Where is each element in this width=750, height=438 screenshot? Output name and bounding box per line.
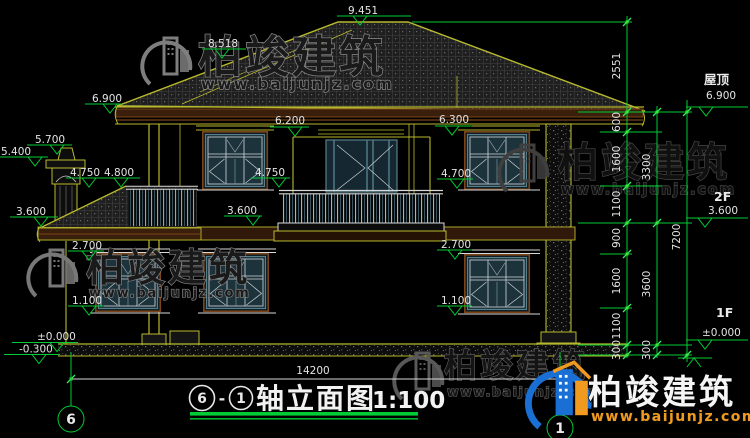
floor-level-marks: 屋顶 6.900 2F 3.600 1F ±0.000	[678, 72, 748, 367]
level-label: 1.100	[72, 295, 102, 307]
brand-logo-color: 柏竣建筑 www.baijunjz.com	[528, 362, 750, 426]
level-label: 5.400	[1, 146, 31, 158]
drawing-title: 6 - 1 轴立面图 1:100	[190, 382, 446, 420]
balcony-railing	[279, 191, 443, 224]
roof-floor-label: 屋顶	[704, 72, 730, 87]
dim-label: 1600	[611, 268, 623, 295]
level-label: 4.800	[104, 167, 134, 179]
dim-label: 300	[641, 340, 653, 360]
cad-elevation-screenshot: 柏竣建筑 www.baijunjz.com 柏竣建筑 www.baijunjz.…	[0, 0, 750, 438]
title-scale: 1:100	[372, 388, 445, 414]
balcony-door	[326, 140, 397, 192]
level-label: 3.600	[16, 206, 46, 218]
watermark-brand-text: 柏竣建筑	[86, 246, 250, 290]
level-label: 4.750	[70, 167, 100, 179]
watermark-url-text: www.baijunjz.com	[89, 286, 251, 301]
window-1f-c	[465, 255, 530, 312]
title-underline-thick	[190, 412, 418, 416]
watermark-url-text: www.baijunjz.com	[201, 75, 394, 93]
overall-width-label: 14200	[296, 365, 329, 377]
f1-floor-label: 1F	[716, 305, 733, 320]
title-axis-start: 6	[197, 391, 207, 407]
f2-floor-value: 3.600	[708, 205, 738, 217]
title-text: 轴立面图	[256, 382, 376, 415]
dim-label: 600	[611, 112, 623, 132]
level-label: 3.600	[227, 205, 257, 217]
window-2f-left	[203, 132, 267, 190]
level-label: 6.200	[275, 115, 305, 127]
watermark-left: 柏竣建筑 www.baijunjz.com	[28, 246, 250, 301]
level-label: -0.300	[19, 344, 53, 356]
roof-floor-value: 6.900	[706, 90, 736, 102]
dim-label: 3600	[641, 271, 653, 298]
level-label: 1.100	[441, 295, 471, 307]
dim-label: 1100	[611, 191, 623, 218]
watermark-url-text: www.baijunjz.com	[561, 182, 736, 198]
dim-label: 1100	[611, 313, 623, 340]
f2-floor-label: 2F	[714, 189, 731, 204]
level-label: 8.518	[208, 38, 238, 50]
level-label: 4.700	[441, 168, 471, 180]
main-eave-fascia	[115, 107, 645, 126]
title-axis-end: 1	[236, 391, 246, 407]
axis-number: 1	[555, 421, 565, 437]
porch-fascia	[37, 228, 201, 242]
porch-railing	[126, 186, 198, 226]
balcony-slab	[274, 223, 446, 241]
level-label: 6.300	[439, 114, 469, 126]
dim-label: 300	[611, 340, 623, 360]
level-label: 5.700	[35, 134, 65, 146]
dim-label: 900	[611, 228, 623, 248]
level-label: 9.451	[348, 5, 378, 17]
title-separator: -	[219, 389, 226, 408]
level-label: 2.700	[441, 239, 471, 251]
brand-logo-text: 柏竣建筑	[588, 373, 736, 413]
level-label: 2.700	[72, 240, 102, 252]
level-label: ±0.000	[37, 331, 76, 343]
dim-label: 3300	[641, 154, 653, 181]
level-label: 6.900	[92, 93, 122, 105]
title-underline-thin	[190, 418, 418, 420]
axis-bubble-1: 1	[547, 415, 573, 438]
elevation-drawing: 柏竣建筑 www.baijunjz.com 柏竣建筑 www.baijunjz.…	[0, 0, 750, 438]
level-label: 4.750	[255, 167, 285, 179]
f1-floor-value: ±0.000	[702, 327, 741, 339]
dim-label: 1600	[611, 146, 623, 173]
dim-label: 7200	[671, 224, 683, 251]
axis-bubble-6: 6	[58, 406, 84, 432]
brand-logo-url: www.baijunjz.com	[591, 409, 750, 425]
axis-number: 6	[66, 412, 76, 428]
dim-label: 2551	[611, 53, 623, 80]
